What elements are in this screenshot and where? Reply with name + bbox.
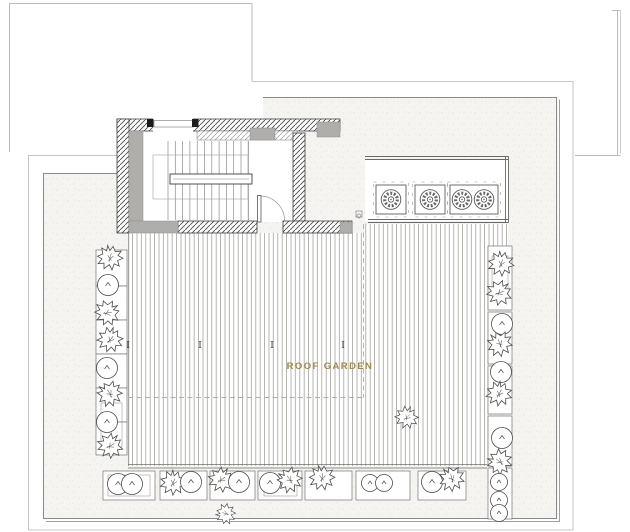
fan-unit-1 — [374, 182, 409, 217]
tree-circle — [491, 505, 508, 522]
tree-circle — [97, 358, 118, 379]
tree-circle — [260, 473, 281, 494]
roof-garden-deck — [128, 224, 508, 468]
section-marker: I — [126, 341, 130, 351]
section-marker: I — [270, 341, 274, 351]
tree-circle — [376, 475, 393, 492]
opening-end-cap — [147, 119, 154, 127]
fan-unit-double — [448, 182, 501, 217]
section-marker: I — [341, 341, 345, 351]
tree-circle — [98, 275, 119, 296]
tree-circle — [181, 472, 202, 493]
tree-circle — [97, 412, 118, 433]
tree-circle — [229, 472, 250, 493]
equipment-enclosure — [356, 157, 509, 223]
tree-circle — [491, 474, 508, 491]
planter-left-column — [93, 243, 128, 463]
tree-circle — [422, 472, 443, 493]
tree-circle — [122, 474, 143, 495]
tree-circle — [491, 362, 512, 383]
door-leaf — [258, 196, 262, 223]
roof-access-opening — [147, 118, 199, 132]
section-marker: I — [198, 341, 202, 351]
roof-garden-label: ROOF GARDEN — [287, 361, 374, 372]
tree-circle — [492, 314, 513, 335]
tree-circle — [492, 428, 513, 449]
fan-unit-2 — [413, 182, 448, 217]
roof-plan-drawing: I I I I ROOF GARDEN — [0, 0, 630, 532]
opening-end-cap — [192, 119, 199, 127]
stair-handrail — [170, 174, 252, 184]
roof-plan-sheet: I I I I ROOF GARDEN — [0, 0, 630, 532]
